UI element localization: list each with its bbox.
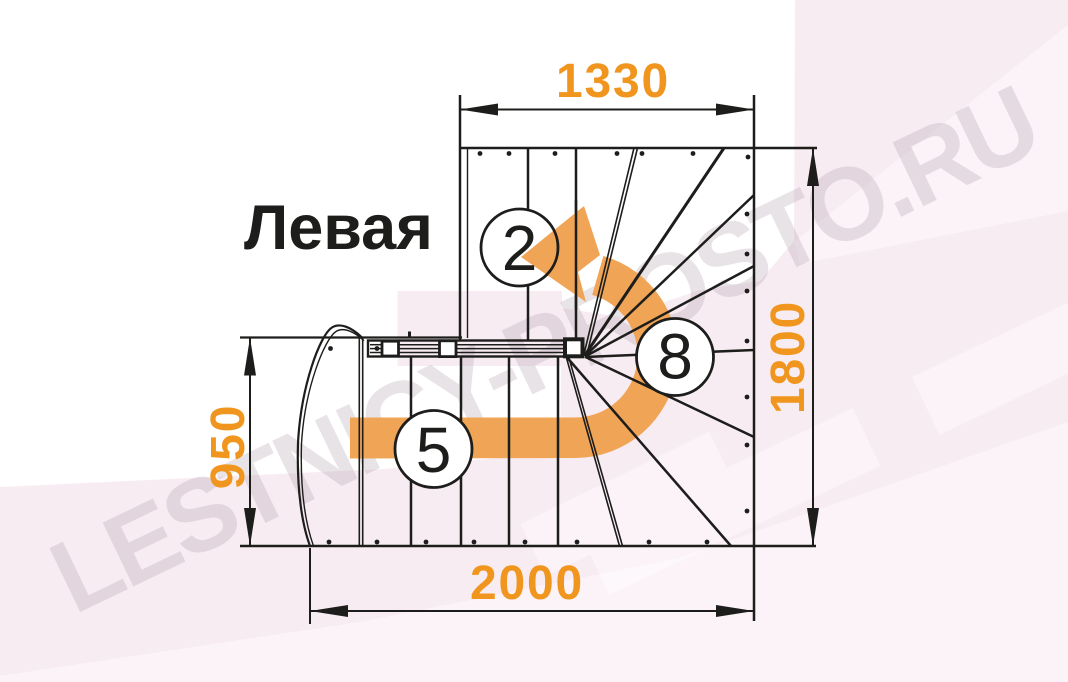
svg-text:5: 5 [416,414,452,486]
svg-text:Левая: Левая [244,193,433,263]
svg-text:1330: 1330 [556,55,670,108]
svg-text:8: 8 [657,321,693,393]
svg-text:2000: 2000 [470,557,584,610]
svg-text:1800: 1800 [762,300,815,414]
svg-text:2: 2 [502,212,538,284]
svg-text:950: 950 [202,404,255,490]
